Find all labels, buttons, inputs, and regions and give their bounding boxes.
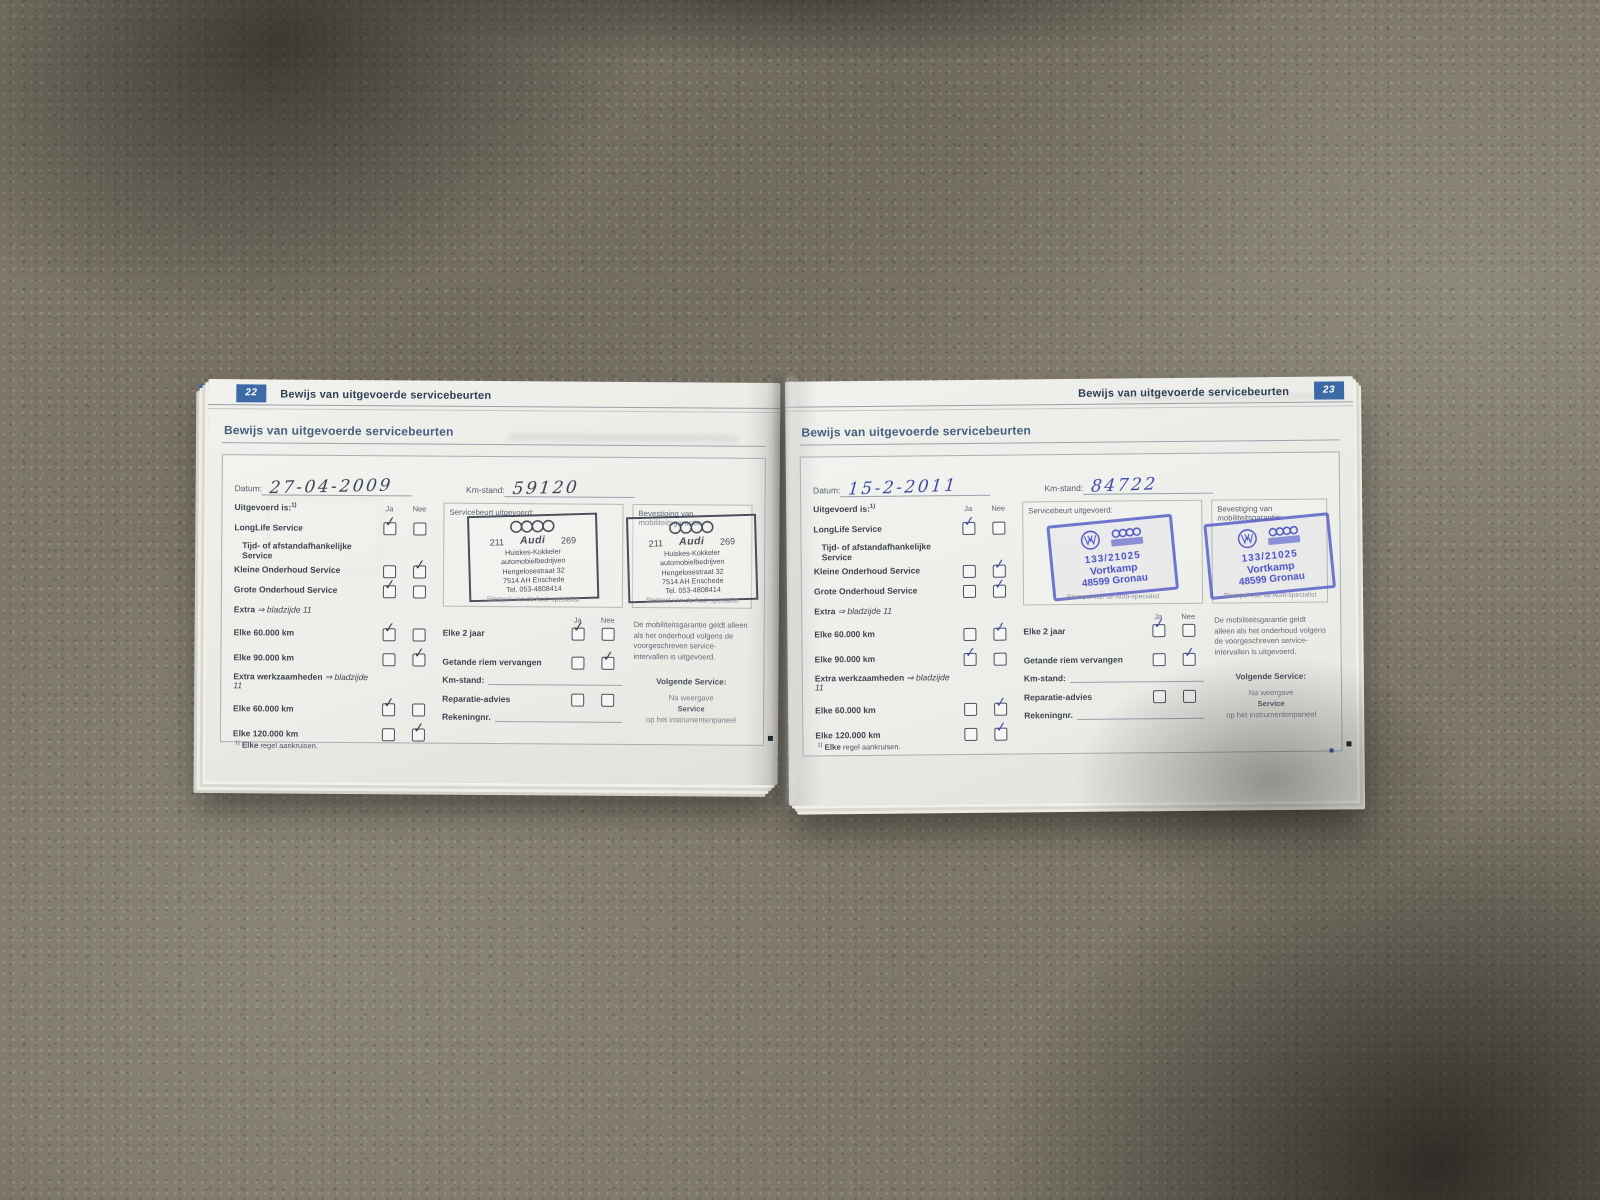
check-row-kleine-onderhoud: Kleine Onderhoud Service ✓: [814, 564, 1014, 579]
checkbox-ja: [1152, 690, 1165, 703]
km-stand-line: Km-stand:: [442, 675, 622, 686]
handwritten-km: 59120: [512, 478, 581, 499]
dealer-stamp: 211 Audi 269 Huiskes-Kokkeler automobiel…: [467, 513, 599, 602]
check-row-elke-60000-extra: Elke 60.000 km ✓: [815, 703, 1015, 718]
garantie-column: Bevestiging van mobiliteitsgarantie:: [1211, 499, 1329, 746]
volgende-service: Volgende Service: Na weergave Service op…: [631, 676, 751, 726]
datum-field: Datum: 15-2-2011: [813, 471, 991, 498]
ja-nee-header: JaNee: [1023, 612, 1203, 623]
service-record-form: Datum: 15-2-2011 Km-stand: 84722 Uitgevo…: [800, 451, 1343, 756]
garantie-stamp-panel: Bevestiging van mobiliteitsgarantie: 211: [632, 504, 753, 609]
ja-nee-header: JaNee: [443, 615, 623, 625]
page-number-tab: 23: [1314, 381, 1344, 399]
check-row-elke-2-jaar: Elke 2 jaar ✓: [443, 627, 623, 641]
checklist-header: Uitgevoerd is:1) Ja Nee: [813, 502, 1013, 516]
photo-scene: 22 Bewijs van uitgevoerde servicebeurten…: [0, 0, 1600, 1200]
page-header-title: Bewijs van uitgevoerde servicebeurten: [280, 389, 491, 402]
section-title: Bewijs van uitgevoerde servicebeurten: [799, 420, 1339, 445]
check-row-elke-90000: Elke 90.000 km ✓: [233, 652, 433, 666]
checkbox-ja: [382, 653, 395, 666]
km-stand-line: Km-stand:: [1024, 672, 1204, 684]
checklist-column: Uitgevoerd is:1) Ja Nee LongLife Service…: [813, 502, 1015, 750]
service-book-page-23: Bewijs van uitgevoerde servicebeurten 23…: [785, 376, 1357, 805]
checkbox-ja: ✓: [383, 522, 396, 535]
checklist-header: Uitgevoerd is:1) Ja Nee: [234, 501, 434, 514]
check-row-reparatie-advies: Reparatie-advies: [1024, 690, 1204, 705]
check-row-reparatie-advies: Reparatie-advies: [442, 693, 622, 707]
audi-rings-icon: [509, 519, 555, 534]
extra-row: Extra ⇒ bladzijde 11: [814, 604, 1014, 618]
checkbox-ja: [964, 728, 977, 741]
vw-logo-icon: [1235, 527, 1258, 550]
checkbox-ja: [571, 657, 584, 670]
footnote: 1) Elke regel aankruisen.: [235, 740, 318, 750]
footnote: 1) Elke regel aankruisen.: [817, 741, 900, 751]
check-row-longlife: LongLife Service ✓: [234, 521, 434, 535]
garantie-note: De mobiliteitsgarantie geldt alleen als …: [1212, 615, 1328, 659]
service-stamp-column: Servicebeurt uitgevoerd: 211 Audi: [442, 503, 624, 750]
extra-werkzaamheden-row: Extra werkzaamheden ⇒ bladzijde 11: [233, 672, 433, 693]
handwritten-date: 15-2-2011: [848, 476, 959, 500]
km-stand-field: Km-stand: 84722: [1044, 469, 1213, 496]
page-header: 22 Bewijs van uitgevoerde servicebeurten: [208, 384, 780, 410]
extra-row: Extra ⇒ bladzijde 11: [234, 604, 434, 617]
check-row-longlife: LongLife Service ✓: [813, 522, 1013, 537]
garantie-note: De mobiliteitsgarantie geldt alleen als …: [631, 620, 751, 663]
volgende-service: Volgende Service: Na weergave Service op…: [1213, 671, 1329, 721]
check-row-kleine-onderhoud: Kleine Onderhoud Service ✓: [234, 564, 434, 578]
handwritten-km: 84722: [1090, 474, 1158, 497]
checkbox-nee: ✓: [601, 657, 614, 670]
checkbox-nee: [993, 652, 1006, 665]
service-book-page-22: 22 Bewijs van uitgevoerde servicebeurten…: [206, 379, 781, 785]
service-stamp-panel: Servicebeurt uitgevoerd:: [1022, 500, 1203, 606]
dealer-stamp: 211 Audi 269 Huiskes-Kokkeler automobiel…: [626, 514, 758, 603]
checkbox-nee: ✓: [411, 728, 424, 741]
check-row-elke-90000: Elke 90.000 km ✓: [815, 652, 1015, 667]
checkbox-ja: ✓: [1152, 624, 1165, 637]
rekeningnr-line: Rekeningnr.: [442, 712, 622, 723]
audi-rings-icon: [1109, 527, 1142, 547]
checkbox-nee: [1182, 690, 1195, 703]
checkbox-ja: ✓: [963, 652, 976, 665]
print-registration-mark: [1330, 749, 1334, 753]
print-registration-mark: [1346, 741, 1351, 746]
handwritten-date: 27-04-2009: [269, 476, 394, 499]
dealer-stamp: 133/21025 Vortkamp 48599 Gronau: [1046, 514, 1179, 602]
checkbox-ja: [964, 703, 977, 716]
audi-rings-icon: [668, 520, 714, 535]
checkbox-nee: ✓: [993, 627, 1006, 640]
checkbox-ja: ✓: [382, 628, 395, 641]
checkbox-nee: [601, 694, 614, 707]
date-km-row: Datum: 27-04-2009 Km-stand: 59120: [235, 465, 753, 499]
garantie-column: Bevestiging van mobiliteitsgarantie: 211: [631, 504, 753, 751]
audi-rings-icon: [1266, 525, 1299, 545]
checklist-column: Uitgevoerd is:1) Ja Nee LongLife Service…: [233, 501, 435, 748]
check-row-elke-60000: Elke 60.000 km ✓: [814, 627, 1014, 642]
checkbox-nee: [412, 585, 425, 598]
page-header-title: Bewijs van uitgevoerde servicebeurten: [1078, 386, 1289, 400]
dealer-stamp: 133/21025 Vortkamp 48599 Gronau: [1203, 512, 1336, 600]
checkbox-nee: [992, 522, 1005, 535]
checkbox-nee: [412, 703, 425, 716]
check-row-elke-60000-extra: Elke 60.000 km ✓: [233, 702, 433, 716]
check-row-elke-2-jaar: Elke 2 jaar ✓: [1023, 624, 1203, 639]
page-header: Bewijs van uitgevoerde servicebeurten 23: [785, 381, 1353, 408]
subheading-row: Tijd- of afstandafhankelijke Service: [234, 541, 434, 562]
checkbox-nee: ✓: [412, 653, 425, 666]
checkbox-ja: [962, 584, 975, 597]
check-row-grote-onderhoud: Grote Onderhoud Service ✓: [234, 584, 434, 598]
check-row-elke-120000: Elke 120.000 km ✓: [815, 728, 1015, 743]
check-row-getande-riem: Getande riem vervangen ✓: [1024, 653, 1204, 668]
check-row-elke-60000: Elke 60.000 km ✓: [234, 627, 434, 641]
subheading-row: Tijd- of afstandafhankelijke Service: [814, 542, 1014, 563]
checkbox-nee: [412, 628, 425, 641]
service-stamp-column: Servicebeurt uitgevoerd:: [1022, 500, 1204, 748]
checkbox-nee: ✓: [994, 703, 1007, 716]
rekeningnr-line: Rekeningnr.: [1024, 709, 1204, 721]
checkbox-ja: [1152, 653, 1165, 666]
checkbox-ja: [962, 564, 975, 577]
check-row-getande-riem: Getande riem vervangen ✓: [442, 656, 622, 670]
checkbox-ja: ✓: [382, 703, 395, 716]
checkbox-nee: [601, 628, 614, 641]
service-stamp-panel: Servicebeurt uitgevoerd: 211 Audi: [443, 503, 624, 608]
checkbox-nee: [413, 522, 426, 535]
garantie-stamp-panel: Bevestiging van mobiliteitsgarantie:: [1211, 499, 1328, 604]
extra-werkzaamheden-row: Extra werkzaamheden ⇒ bladzijde 11: [815, 672, 1015, 693]
date-km-row: Datum: 15-2-2011 Km-stand: 84722: [813, 463, 1327, 498]
shadow-band: [180, 0, 1430, 90]
checkbox-ja: [963, 627, 976, 640]
checkbox-nee: ✓: [413, 565, 426, 578]
checkbox-nee: [1182, 624, 1195, 637]
checkbox-ja: [571, 694, 584, 707]
section-title: Bewijs van uitgevoerde servicebeurten: [222, 423, 766, 447]
checkbox-nee: ✓: [992, 584, 1005, 597]
print-registration-mark: [768, 736, 773, 741]
datum-field: Datum: 27-04-2009: [235, 470, 413, 496]
page-number-tab: 22: [236, 384, 266, 402]
check-row-grote-onderhoud: Grote Onderhoud Service ✓: [814, 584, 1014, 599]
checkbox-ja: ✓: [571, 628, 584, 641]
km-stand-field: Km-stand: 59120: [466, 472, 635, 498]
checkbox-ja: ✓: [382, 585, 395, 598]
checkbox-ja: [381, 728, 394, 741]
vw-logo-icon: [1078, 529, 1101, 552]
service-record-form: Datum: 27-04-2009 Km-stand: 59120 Uitgev…: [220, 454, 766, 746]
checkbox-nee: ✓: [1182, 653, 1195, 666]
checkbox-nee: ✓: [994, 728, 1007, 741]
checkbox-ja: ✓: [962, 522, 975, 535]
